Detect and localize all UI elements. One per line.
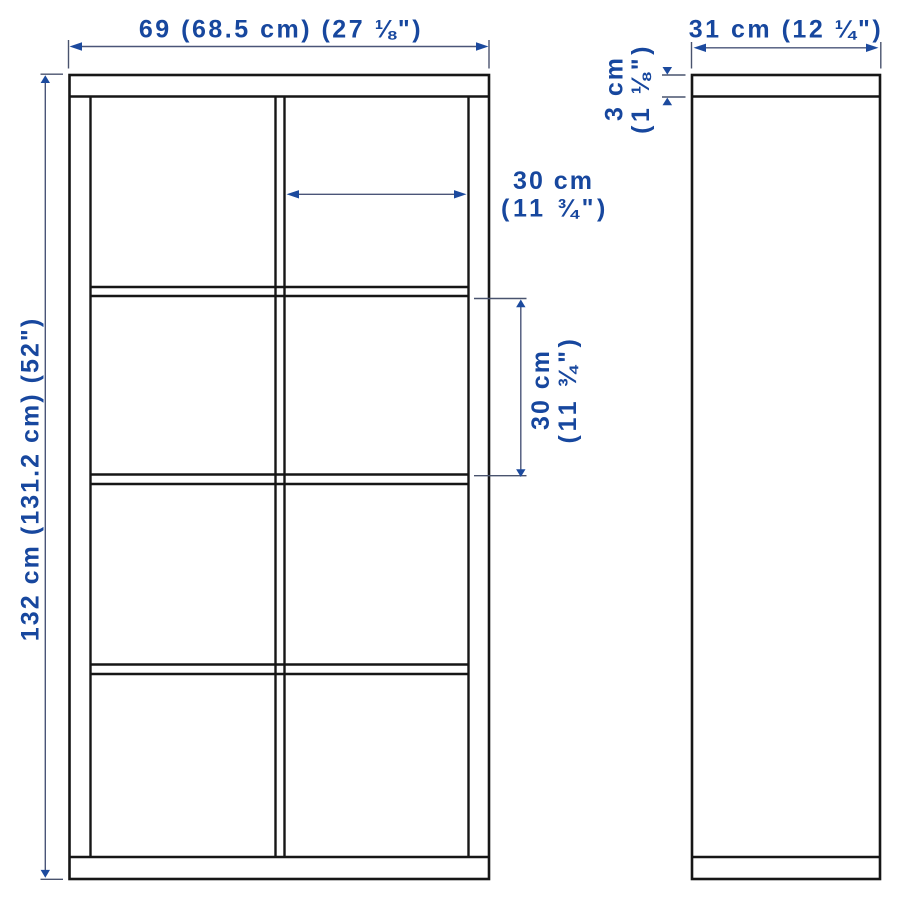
svg-text:(1 ⅛"): (1 ⅛")	[627, 43, 655, 134]
svg-text:30 cm: 30 cm	[527, 349, 555, 430]
svg-text:(11 ¾"): (11 ¾")	[554, 336, 582, 444]
svg-text:3 cm: 3 cm	[600, 56, 628, 121]
svg-text:31 cm (12 ¼"): 31 cm (12 ¼")	[689, 16, 883, 44]
svg-text:30 cm: 30 cm	[513, 167, 594, 195]
svg-text:132 cm (131.2 cm) (52"): 132 cm (131.2 cm) (52")	[17, 317, 45, 641]
svg-text:69 (68.5 cm) (27 ⅛"): 69 (68.5 cm) (27 ⅛")	[139, 16, 423, 44]
svg-text:(11 ¾"): (11 ¾")	[501, 195, 609, 223]
